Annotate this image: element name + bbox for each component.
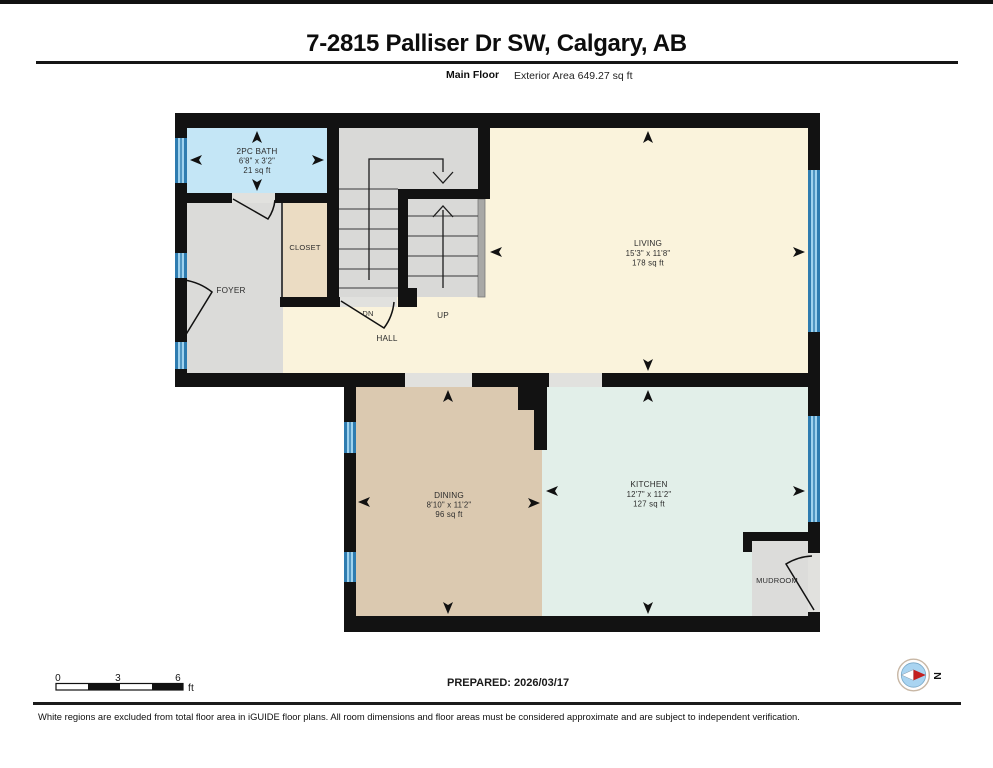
stair-handrail — [478, 199, 485, 297]
room-label-foyer: FOYER — [216, 286, 245, 295]
room-label-kitchen-area: 127 sq ft — [633, 500, 665, 509]
scale-bar: 0 3 6 ft — [55, 673, 194, 694]
wall-closet-bottom — [280, 297, 340, 307]
room-label-bath-area: 21 sq ft — [243, 166, 271, 175]
scale-bar-segment-2 — [88, 684, 120, 691]
wall-stair-divider-stub — [398, 288, 417, 307]
wall-middle-band — [175, 373, 820, 387]
floor-plan-drawing: 2PC BATH 6'8" x 3'2" 21 sq ft CLOSET FOY… — [0, 0, 993, 768]
window-dining-left-b — [344, 552, 356, 582]
room-label-hall: HALL — [376, 334, 398, 343]
stair-label-up: UP — [437, 311, 449, 320]
room-label-dining-name: DINING — [434, 491, 464, 500]
wall-stair-right — [478, 128, 490, 199]
room-label-mudroom: MUDROOM — [756, 576, 798, 585]
wall-dining-kitchen-stub-a — [518, 387, 547, 410]
wall-bottom — [344, 616, 820, 632]
window-bath-left — [175, 138, 187, 183]
scale-tick-3: 3 — [115, 673, 121, 684]
room-label-bath-dims: 6'8" x 3'2" — [239, 157, 275, 166]
scale-bar-segment-4 — [152, 684, 183, 691]
room-label-dining-area: 96 sq ft — [435, 510, 463, 519]
wall-mudroom-stub — [743, 532, 752, 552]
window-foyer-left-b — [175, 342, 187, 369]
floor-plan-page: 7-2815 Palliser Dr SW, Calgary, AB Main … — [0, 0, 993, 768]
prepared-date: PREPARED: 2026/03/17 — [447, 677, 569, 689]
room-label-kitchen-name: KITCHEN — [630, 480, 667, 489]
room-label-closet: CLOSET — [289, 243, 320, 252]
scale-unit-label: ft — [188, 683, 194, 694]
wall-dining-kitchen-stub-b — [534, 410, 547, 450]
wall-closet-left-line — [281, 203, 283, 297]
window-kitchen-right — [808, 416, 820, 522]
room-label-dining-dims: 8'10" x 11'2" — [427, 501, 472, 510]
window-living-right — [808, 170, 820, 332]
scale-tick-6: 6 — [175, 673, 181, 684]
wall-top — [175, 113, 820, 128]
room-label-kitchen-dims: 12'7" x 11'2" — [627, 490, 672, 499]
wall-upflight-top — [408, 189, 490, 199]
room-label-living-dims: 15'3" x 11'8" — [626, 249, 671, 258]
room-label-living-name: LIVING — [634, 239, 662, 248]
room-label-bath-name: 2PC BATH — [236, 147, 277, 156]
threshold-hall-dining-opening — [405, 373, 472, 387]
compass-north-label: N — [931, 672, 943, 680]
wall-stair-divider — [398, 189, 408, 297]
disclaimer-text: White regions are excluded from total fl… — [38, 711, 800, 722]
scale-tick-0: 0 — [55, 673, 61, 684]
wall-bath-closet-right — [327, 128, 339, 307]
window-foyer-left-a — [175, 253, 187, 278]
room-label-living-area: 178 sq ft — [632, 259, 664, 268]
stair-label-down: DN — [362, 309, 373, 318]
threshold-living-kitchen-opening — [549, 373, 602, 387]
wall-mudroom-top — [743, 532, 820, 541]
compass-icon: N — [898, 659, 943, 691]
window-dining-left-a — [344, 422, 356, 453]
footer-divider — [33, 702, 961, 705]
